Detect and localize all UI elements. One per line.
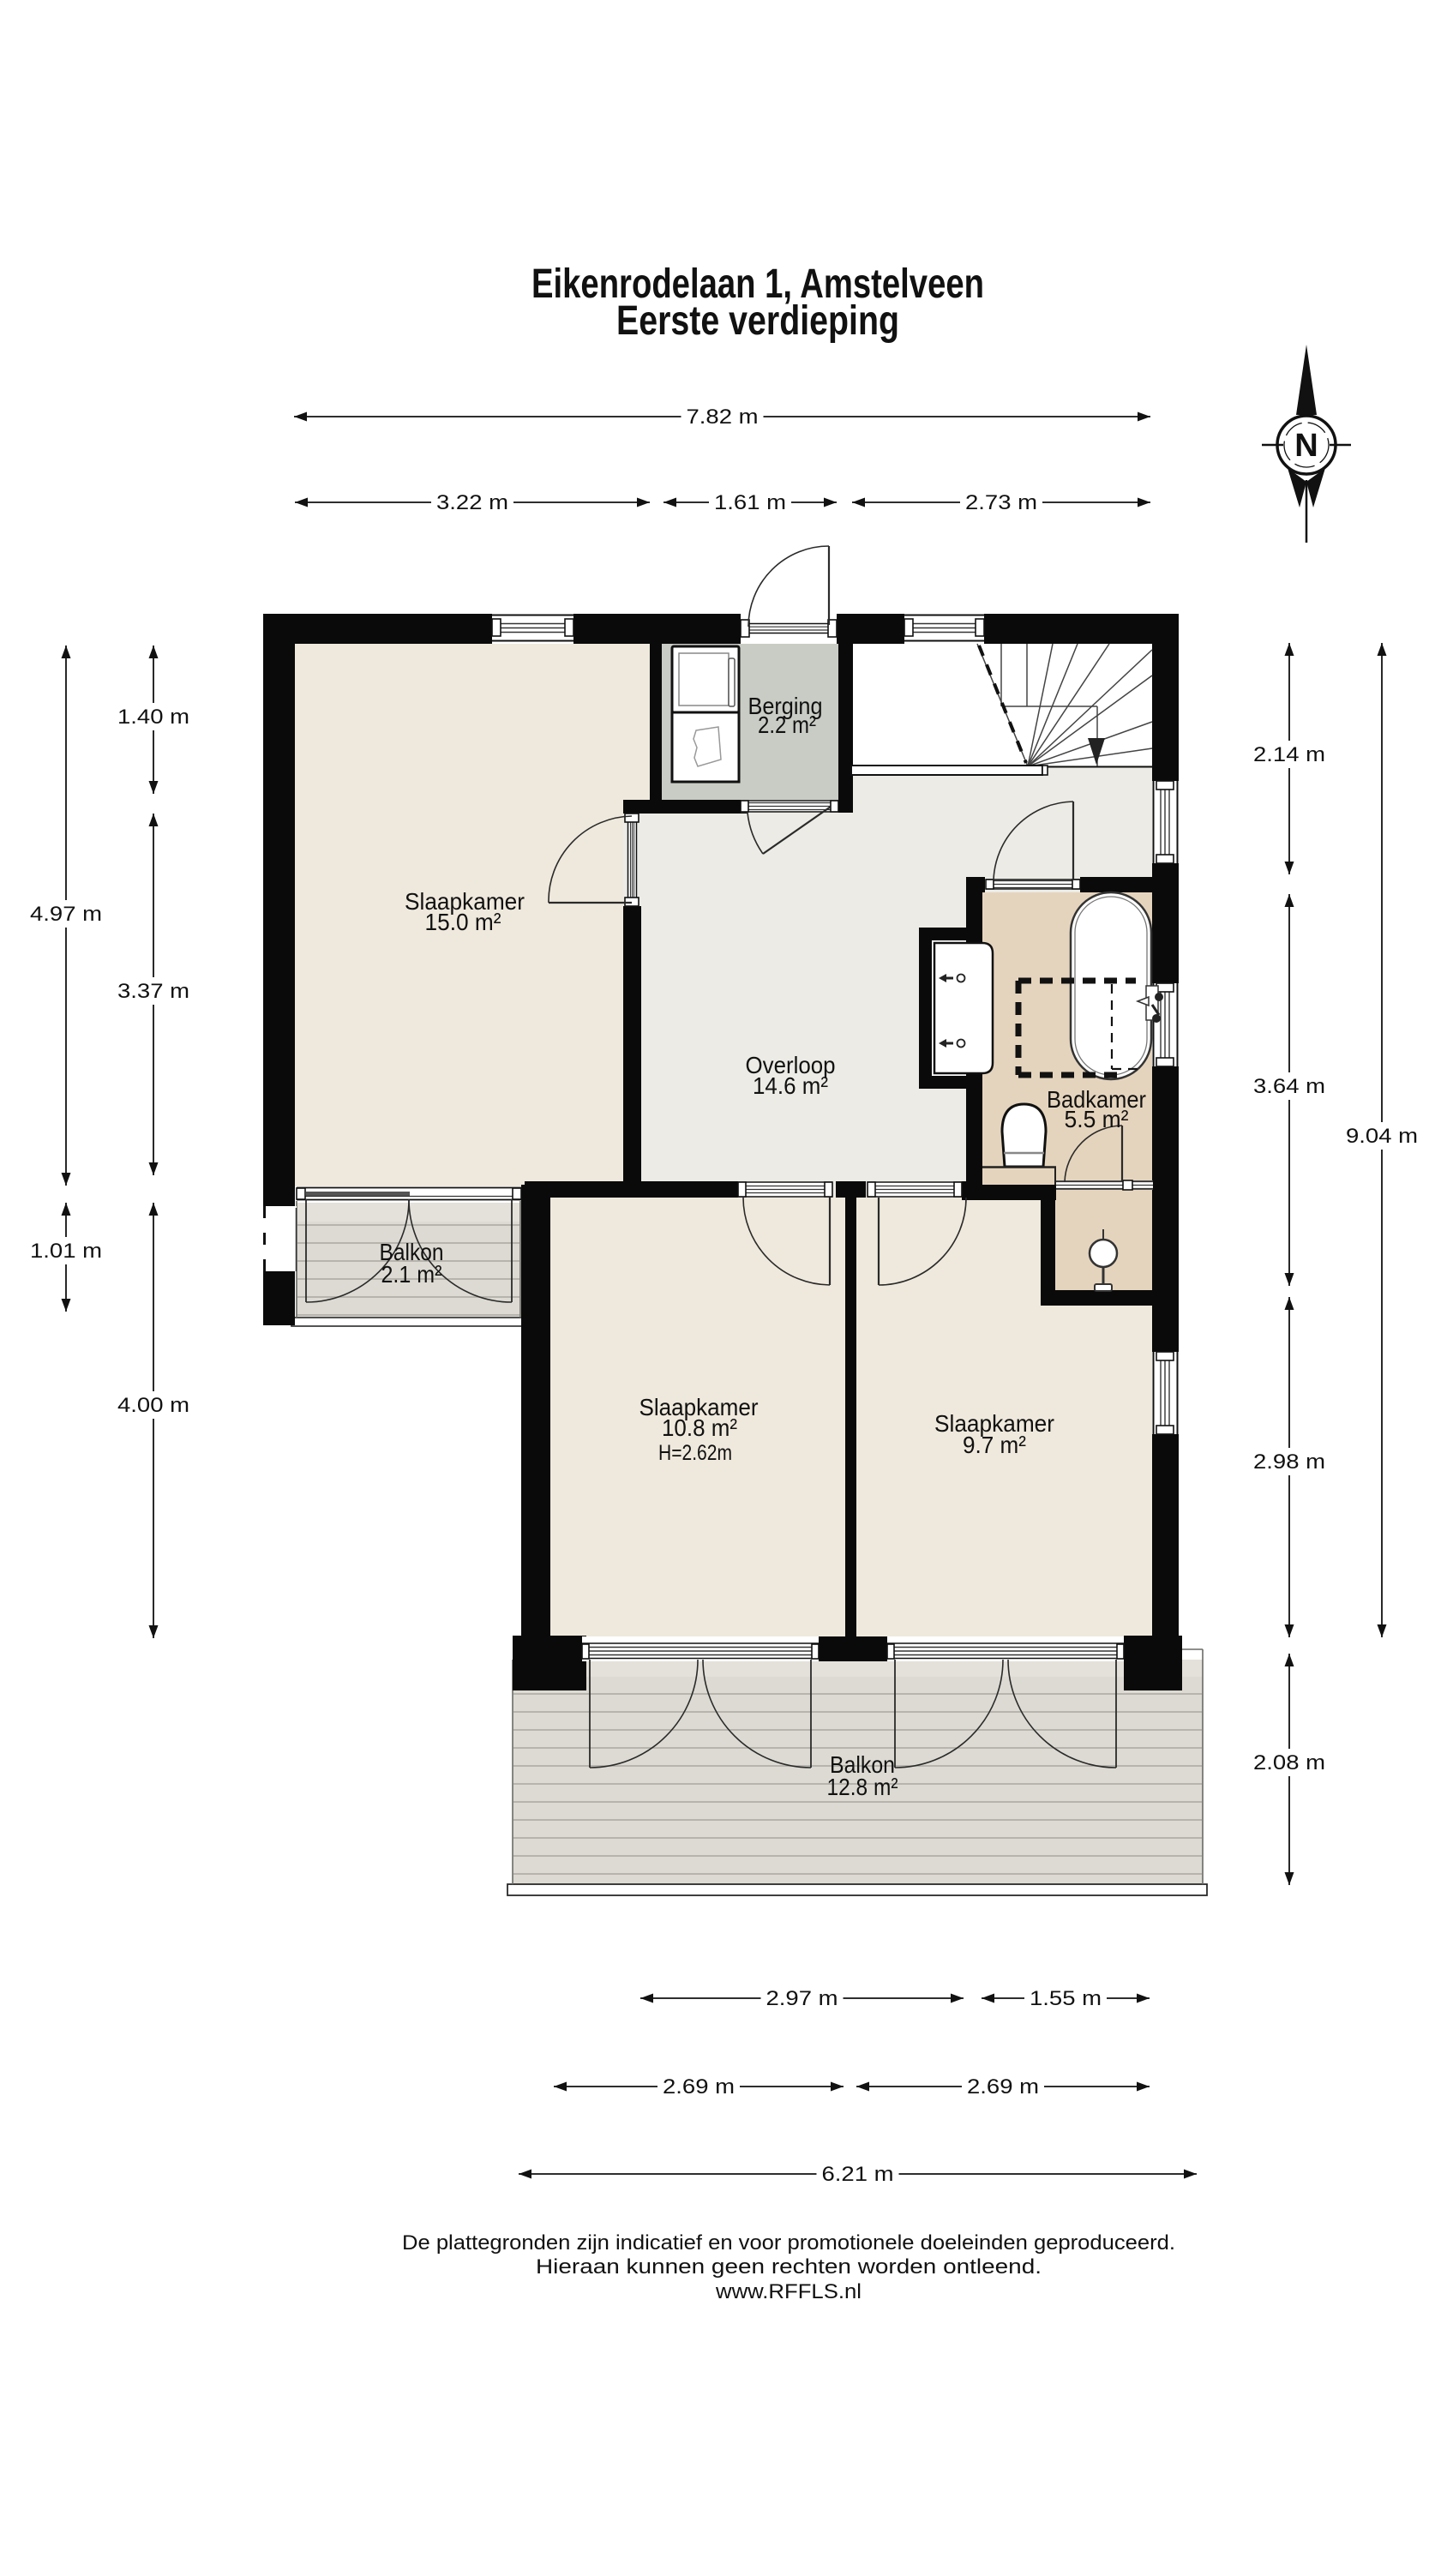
- svg-text:www.RFFLS.nl: www.RFFLS.nl: [715, 2280, 862, 2303]
- svg-text:14.6 m²: 14.6 m²: [753, 1072, 828, 1099]
- svg-text:7.82 m: 7.82 m: [687, 405, 759, 429]
- svg-text:2.2 m²: 2.2 m²: [758, 712, 816, 738]
- svg-text:2.69 m: 2.69 m: [663, 2075, 735, 2099]
- svg-text:N: N: [1294, 428, 1318, 464]
- svg-text:5.5 m²: 5.5 m²: [1065, 1106, 1129, 1132]
- svg-text:3.37 m: 3.37 m: [117, 980, 189, 1003]
- svg-text:10.8 m²: 10.8 m²: [662, 1414, 737, 1441]
- svg-text:De plattegronden zijn indicati: De plattegronden zijn indicatief en voor…: [402, 2231, 1175, 2255]
- svg-text:2.14 m: 2.14 m: [1253, 743, 1325, 766]
- svg-text:H=2.62m: H=2.62m: [658, 1441, 732, 1465]
- svg-text:1.40 m: 1.40 m: [117, 706, 189, 729]
- svg-text:2.73 m: 2.73 m: [965, 491, 1037, 514]
- svg-text:4.00 m: 4.00 m: [117, 1394, 189, 1417]
- svg-text:2.69 m: 2.69 m: [967, 2075, 1039, 2099]
- svg-text:2.1 m²: 2.1 m²: [381, 1261, 442, 1288]
- svg-text:15.0 m²: 15.0 m²: [425, 909, 501, 935]
- svg-text:6.21 m: 6.21 m: [822, 2163, 894, 2186]
- svg-text:1.61 m: 1.61 m: [714, 491, 786, 514]
- svg-text:2.98 m: 2.98 m: [1253, 1450, 1325, 1474]
- svg-text:Hieraan kunnen geen rechten wo: Hieraan kunnen geen rechten worden ontle…: [536, 2255, 1042, 2279]
- svg-text:4.97 m: 4.97 m: [30, 903, 102, 926]
- svg-text:1.01 m: 1.01 m: [30, 1240, 102, 1263]
- svg-text:12.8 m²: 12.8 m²: [827, 1774, 898, 1800]
- svg-text:2.97 m: 2.97 m: [766, 1987, 838, 2010]
- svg-text:3.64 m: 3.64 m: [1253, 1075, 1325, 1098]
- svg-text:3.22 m: 3.22 m: [436, 491, 508, 514]
- svg-text:9.04 m: 9.04 m: [1346, 1125, 1418, 1148]
- svg-text:1.55 m: 1.55 m: [1030, 1987, 1102, 2010]
- svg-text:2.08 m: 2.08 m: [1253, 1751, 1325, 1774]
- svg-text:9.7 m²: 9.7 m²: [963, 1432, 1026, 1458]
- svg-text:Eerste verdieping: Eerste verdieping: [616, 298, 899, 344]
